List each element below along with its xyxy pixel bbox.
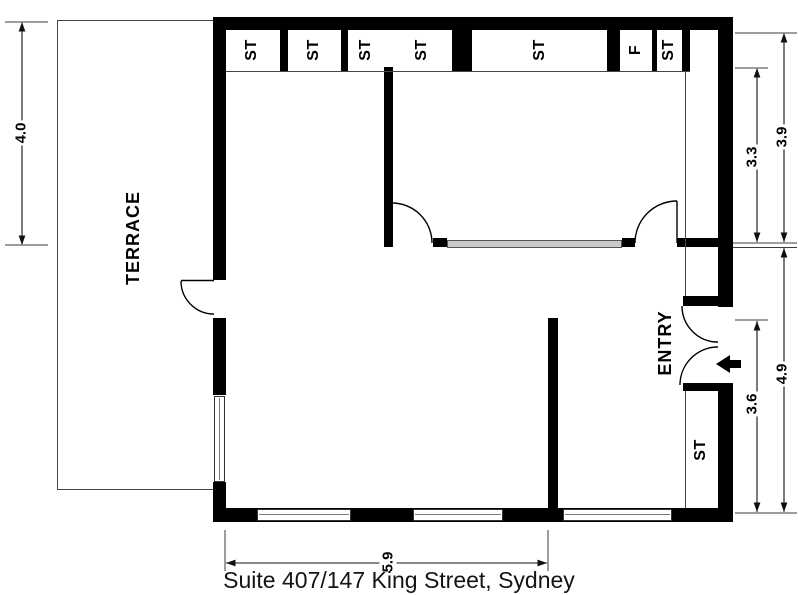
storage-unit-label: ST: [244, 39, 260, 60]
terrace-door-arc: [181, 281, 214, 314]
terrace-label: TERRACE: [124, 191, 142, 285]
closet-storage-label: ST: [693, 439, 709, 460]
storage-unit-label: ST: [306, 39, 322, 60]
storage-unit-label: ST: [414, 39, 430, 60]
fridge-label: F: [628, 45, 644, 55]
storage-unit-label: ST: [358, 39, 374, 60]
room-left-door-arc: [392, 203, 432, 243]
dimension-arrowheads: [19, 22, 788, 566]
entry-direction-arrow-icon: [716, 355, 741, 373]
dimension-label-right-top-outer: 3.9: [774, 125, 791, 150]
entry-upper-door-arc: [682, 306, 718, 342]
dimension-lines: [22, 23, 784, 563]
room-right-door-arc: [635, 201, 677, 243]
entry-label: ENTRY: [656, 310, 674, 375]
floor-plan: TERRACE ENTRY ST ST ST ST ST ST F ST 4.0…: [0, 0, 798, 595]
dimension-label-right-bottom-inner: 3.6: [744, 392, 761, 417]
plan-linework: [0, 0, 798, 595]
entry-lower-door-arc: [680, 347, 718, 385]
dimension-label-right-bottom-outer: 4.9: [774, 362, 791, 387]
plan-caption: Suite 407/147 King Street, Sydney: [0, 567, 798, 594]
dimension-label-terrace-side: 4.0: [13, 121, 30, 146]
storage-unit-label: ST: [661, 39, 677, 60]
dimension-extension-lines: [5, 22, 797, 571]
door-swing-arcs: [181, 201, 718, 385]
storage-unit-label: ST: [532, 39, 548, 60]
dimension-label-right-top-inner: 3.3: [744, 145, 761, 170]
